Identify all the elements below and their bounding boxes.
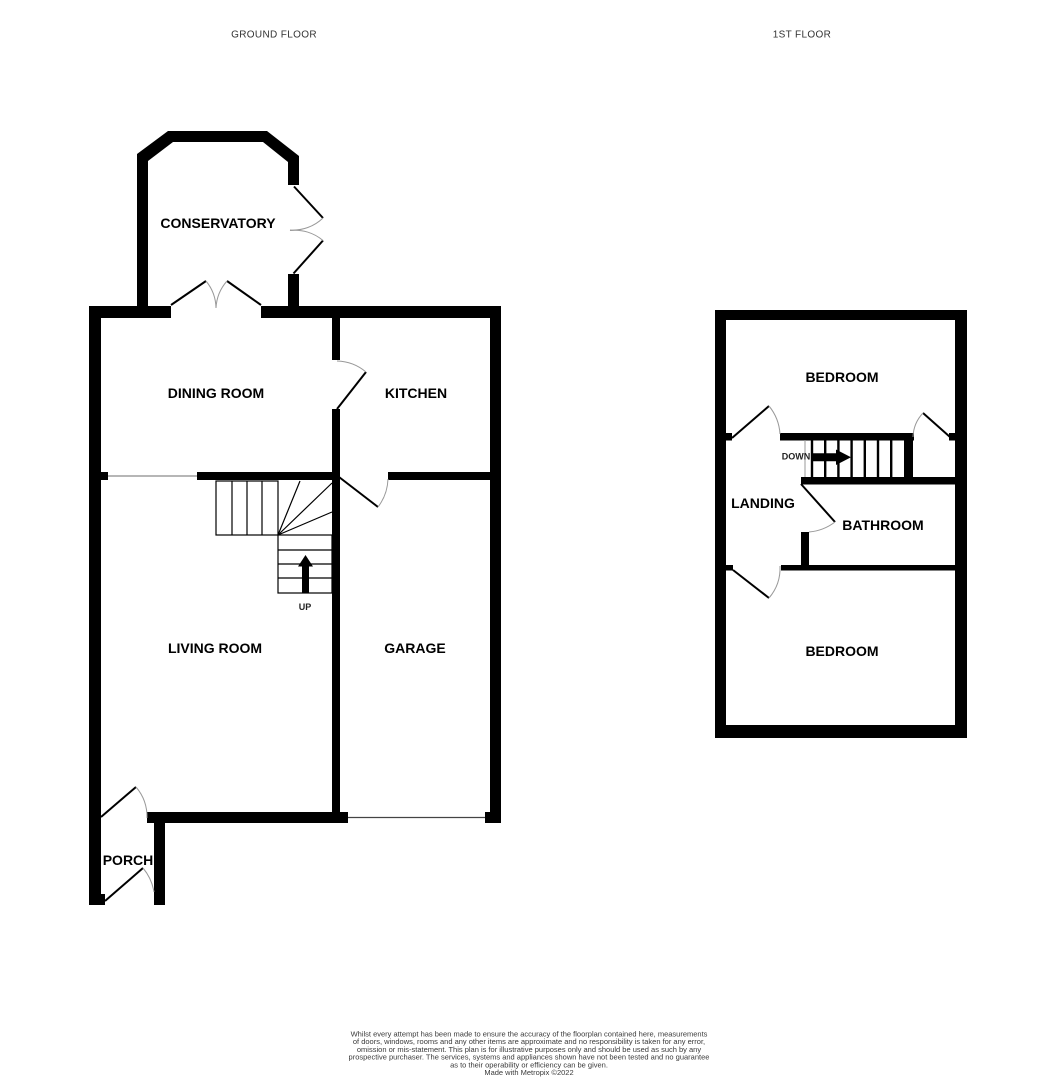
svg-text:DOWN: DOWN (782, 452, 811, 462)
svg-text:LANDING: LANDING (731, 495, 795, 511)
svg-text:BATHROOM: BATHROOM (842, 517, 923, 533)
svg-text:1ST FLOOR: 1ST FLOOR (773, 29, 832, 40)
svg-text:BEDROOM: BEDROOM (805, 369, 878, 385)
svg-text:DINING ROOM: DINING ROOM (168, 385, 264, 401)
svg-text:PORCH: PORCH (103, 852, 154, 868)
svg-text:GARAGE: GARAGE (384, 640, 445, 656)
svg-text:GROUND FLOOR: GROUND FLOOR (231, 29, 317, 40)
svg-text:LIVING ROOM: LIVING ROOM (168, 640, 262, 656)
svg-text:BEDROOM: BEDROOM (805, 643, 878, 659)
svg-text:KITCHEN: KITCHEN (385, 385, 447, 401)
svg-text:UP: UP (299, 602, 312, 612)
svg-text:Made with Metropix ©2022: Made with Metropix ©2022 (484, 1068, 573, 1077)
svg-text:CONSERVATORY: CONSERVATORY (160, 215, 276, 231)
